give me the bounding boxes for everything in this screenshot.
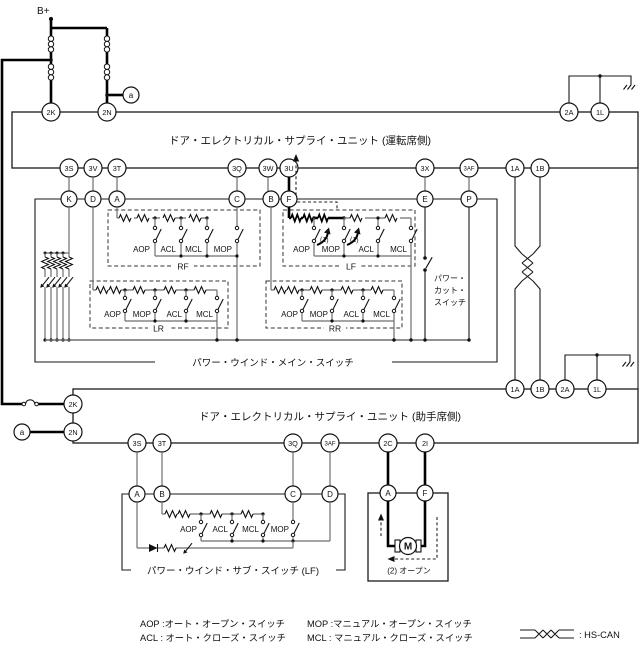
ground-icon — [624, 85, 636, 90]
legend-acl: ACL : オート・クローズ・スイッチ — [140, 632, 286, 643]
resistor-icon — [96, 287, 108, 294]
fusible-link-icon — [48, 64, 53, 80]
svg-text:MOP: MOP — [310, 310, 328, 319]
connector-1a-unit2: 1A — [506, 380, 524, 398]
connector-3af-unit2: 3AF — [321, 434, 339, 452]
connector-1b-unit1: 1B — [531, 159, 549, 177]
resistor-icon — [371, 287, 383, 294]
svg-text:AOP: AOP — [281, 310, 298, 319]
connector-3q-unit2: 3Q — [284, 434, 302, 452]
switch-icon-mop — [330, 296, 338, 312]
svg-text:2A: 2A — [565, 108, 574, 117]
pin-a: A — [109, 191, 125, 207]
connector-3s-unit2: 3S — [128, 434, 146, 452]
wiring-diagram: B+ a ドア・エレクトリカル・サプライ・ユニット (運転席側) 2K 2N 2… — [0, 0, 643, 649]
svg-text:AOP: AOP — [180, 525, 197, 534]
connector-2k-unit1: 2K — [42, 103, 60, 121]
pin-b: B — [263, 191, 279, 207]
svg-text:F: F — [287, 195, 292, 204]
svg-text:3T: 3T — [113, 164, 122, 173]
svg-text:MOP: MOP — [214, 245, 232, 254]
legend: AOP :オート・オープン・スイッチ ACL : オート・クローズ・スイッチ M… — [140, 619, 620, 643]
pin-f: F — [281, 191, 297, 207]
resistor-icon — [350, 215, 362, 222]
sub-switch-stubs — [137, 452, 330, 486]
unit1-ground-wires — [569, 76, 631, 103]
connector-2k-unit2: 2K — [64, 395, 82, 413]
svg-text:1L: 1L — [596, 108, 604, 117]
window-motor-assembly: A F M (2) オープン — [368, 452, 448, 581]
resistor-icon — [137, 215, 149, 222]
switch-box-lf: (1) (1) AOP MOP ACL MCL LF — [283, 207, 417, 340]
switch-icon-mcl — [409, 226, 417, 242]
connector-3t-unit2: 3T — [153, 434, 171, 452]
resistor-icon — [318, 215, 328, 222]
connector-2i-unit2: 2I — [416, 434, 434, 452]
connector-2c-unit2: 2C — [379, 434, 397, 452]
illumination-bank — [40, 207, 73, 342]
connector-2a-unit1: 2A — [560, 103, 578, 121]
legend-aop: AOP :オート・オープン・スイッチ — [140, 619, 285, 629]
svg-text:2K: 2K — [69, 400, 78, 409]
switch-box-rr: AOP MOP ACL MCL RR — [266, 207, 402, 340]
svg-text:B: B — [268, 195, 273, 204]
svg-text:2C: 2C — [383, 439, 392, 448]
svg-text:2K: 2K — [47, 108, 56, 117]
pin-c: C — [229, 191, 245, 207]
svg-text:C: C — [234, 195, 240, 204]
switch-icon-mcl — [261, 520, 269, 536]
connector-1l-unit1: 1L — [591, 103, 609, 121]
svg-text:2N: 2N — [68, 428, 77, 437]
svg-text:3V: 3V — [89, 164, 98, 173]
connector-3t-unit1: 3T — [108, 159, 126, 177]
switch-icon-aop — [123, 296, 131, 312]
switch-icon-aop — [199, 520, 207, 536]
svg-text:D: D — [90, 195, 96, 204]
svg-text:C: C — [290, 490, 296, 499]
connector-a2: a — [14, 424, 30, 440]
resistor-icon — [287, 287, 299, 294]
svg-text:a: a — [20, 428, 25, 437]
resistor-icon — [164, 545, 176, 552]
svg-text:3U: 3U — [284, 164, 293, 173]
switch-icon-acl — [179, 226, 187, 242]
switch-icon-mop — [291, 520, 299, 536]
resistor-icon — [241, 511, 253, 518]
hs-can-twisted-pair — [515, 177, 540, 380]
unit1-switch-stubs — [69, 177, 469, 191]
svg-text:カット・: カット・ — [434, 286, 466, 295]
connector-3af-unit1: 3AF — [460, 159, 478, 177]
switch-box-rf: AOP ACL MCL MOP RF — [108, 207, 260, 340]
resistor-icon — [165, 511, 177, 518]
fuse-icon — [22, 400, 38, 406]
connector-1b-unit2: 1B — [531, 380, 549, 398]
pin-sub-c: C — [285, 486, 301, 502]
pin-d: D — [85, 191, 101, 207]
svg-text:ACL: ACL — [166, 310, 182, 319]
svg-text:1L: 1L — [593, 385, 601, 394]
resistor-icon — [164, 287, 176, 294]
svg-text:AOP: AOP — [293, 245, 310, 254]
connector-3x-unit1: 3X — [416, 159, 434, 177]
pin-motor-a: A — [380, 485, 396, 501]
resistor-icon — [341, 287, 353, 294]
svg-text:MOP: MOP — [271, 525, 289, 534]
svg-text:1B: 1B — [536, 385, 545, 394]
pin-sub-a: A — [129, 486, 145, 502]
battery-wire — [51, 19, 107, 103]
motor-open-note: (2) オープン — [387, 567, 431, 576]
connector-3v-unit1: 3V — [84, 159, 102, 177]
pin-sub-d: D — [322, 486, 338, 502]
resistor-icon — [291, 215, 301, 222]
switch-icon-acl — [184, 296, 192, 312]
switch-icon-acl — [376, 226, 384, 242]
switch-icon-mop — [235, 226, 243, 242]
svg-text:MCL: MCL — [196, 310, 213, 319]
step1-note: (1) — [320, 237, 329, 244]
resistor-icon — [303, 215, 313, 222]
connector-1l-unit2: 1L — [588, 380, 606, 398]
resistor-icon — [189, 215, 201, 222]
svg-text:a: a — [129, 91, 134, 100]
svg-text:1A: 1A — [511, 164, 520, 173]
switch-icon-aop — [300, 296, 308, 312]
fusible-link-icon — [48, 36, 53, 52]
svg-text:AOP: AOP — [104, 310, 121, 319]
svg-text:K: K — [66, 195, 72, 204]
svg-text:E: E — [422, 195, 427, 204]
svg-text:MCL: MCL — [373, 310, 390, 319]
svg-text:ACL: ACL — [358, 245, 374, 254]
connector-a1: a — [123, 87, 139, 103]
resistor-icon — [119, 215, 131, 222]
unit1-title: ドア・エレクトリカル・サプライ・ユニット (運転席側) — [169, 134, 431, 147]
ground-icon — [623, 362, 635, 367]
connector-2n-unit1: 2N — [98, 103, 116, 121]
battery-label: B+ — [37, 6, 50, 17]
svg-text:3W: 3W — [263, 164, 274, 173]
power-window-main-switch: パワー・ウインド・メイン・スイッチ K D A C B F E P — [35, 191, 497, 369]
legend-mop: MOP :マニュアル・オープン・スイッチ — [307, 619, 472, 629]
resistor-icon — [194, 287, 206, 294]
connector-1a-unit1: 1A — [506, 159, 524, 177]
switch-icon-mop — [153, 296, 161, 312]
illumination-branches — [40, 253, 73, 340]
svg-text:F: F — [423, 489, 428, 498]
fusible-link-icon — [104, 36, 109, 52]
svg-text:MOP: MOP — [133, 310, 151, 319]
switch-icon-mop — [342, 226, 350, 242]
svg-text:P: P — [466, 195, 471, 204]
pin-p: P — [461, 191, 477, 207]
pin-sub-b: B — [154, 486, 170, 502]
pin-e: E — [417, 191, 433, 207]
switch-icon-aop — [312, 226, 320, 242]
svg-text:3AF: 3AF — [324, 442, 335, 448]
svg-text:1B: 1B — [536, 164, 545, 173]
svg-text:A: A — [114, 195, 120, 204]
resistor-icon — [178, 511, 190, 518]
svg-text:3AF: 3AF — [463, 167, 474, 173]
resistor-icon — [109, 287, 121, 294]
lf-box-label: LF — [346, 262, 356, 272]
svg-text:ACL: ACL — [212, 525, 228, 534]
step1-note: (1) — [350, 237, 359, 244]
hs-can-symbol-icon — [520, 630, 574, 638]
connector-2a-unit2: 2A — [556, 380, 574, 398]
switch-blade-icon — [426, 257, 432, 268]
svg-text:B: B — [159, 490, 164, 499]
pin-motor-f: F — [417, 485, 433, 501]
svg-text:パワー・: パワー・ — [434, 274, 466, 283]
motor-m-label: M — [404, 542, 412, 553]
svg-text:1A: 1A — [511, 385, 520, 394]
power-window-sub-switch: パワー・ウインド・サブ・スイッチ (LF) A B C D AOP ACL MC… — [122, 452, 345, 577]
lr-box-label: LR — [153, 324, 164, 334]
resistor-icon — [274, 287, 286, 294]
svg-text:3Q: 3Q — [288, 439, 298, 448]
rr-box-label: RR — [329, 324, 341, 334]
svg-text:A: A — [385, 489, 391, 498]
connector-3q-unit1: 3Q — [228, 159, 246, 177]
svg-text:3T: 3T — [158, 439, 167, 448]
svg-text:3X: 3X — [421, 164, 430, 173]
resistor-icon — [163, 215, 175, 222]
switch-icon-acl — [361, 296, 369, 312]
svg-text:3Q: 3Q — [232, 164, 242, 173]
svg-text:A: A — [134, 490, 140, 499]
svg-text:3S: 3S — [133, 439, 142, 448]
fusible-link-icon — [104, 64, 109, 80]
connector-2n-unit2: 2N — [64, 423, 82, 441]
svg-text:MCL: MCL — [390, 245, 407, 254]
unit2-title: ドア・エレクトリカル・サプライ・ユニット (助手席側) — [199, 410, 461, 423]
resistor-icon — [210, 511, 222, 518]
motor-feed-wires — [388, 452, 425, 486]
svg-text:3S: 3S — [65, 164, 74, 173]
svg-text:ACL: ACL — [160, 245, 176, 254]
svg-text:2I: 2I — [422, 439, 428, 448]
switch-icon-mcl — [205, 226, 213, 242]
svg-text:2N: 2N — [102, 108, 111, 117]
connector-3s-unit1: 3S — [60, 159, 78, 177]
svg-text:MCL: MCL — [185, 245, 202, 254]
main-switch-label: パワー・ウインド・メイン・スイッチ — [192, 358, 354, 369]
svg-text:MCL: MCL — [242, 525, 259, 534]
svg-text:MOP: MOP — [322, 245, 340, 254]
resistor-icon — [133, 287, 145, 294]
wiring-diagram-page: B+ a ドア・エレクトリカル・サプライ・ユニット (運転席側) 2K 2N 2… — [0, 0, 643, 649]
resistor-icon — [310, 287, 322, 294]
svg-text:スイッチ: スイッチ — [434, 298, 466, 307]
svg-text:D: D — [327, 490, 333, 499]
switch-icon-mcl — [215, 296, 223, 312]
rf-box-label: RF — [177, 262, 188, 272]
pin-k: K — [61, 191, 77, 207]
switch-icon-acl — [230, 520, 238, 536]
svg-text:2A: 2A — [561, 385, 570, 394]
connector-3u-unit1: 3U — [280, 159, 298, 177]
legend-mcl: MCL : マニュアル・クローズ・スイッチ — [307, 632, 473, 643]
svg-text:ACL: ACL — [343, 310, 359, 319]
power-cut-switch: パワー・ カット・ スイッチ — [423, 207, 466, 340]
legend-hscan: : HS-CAN — [579, 630, 620, 640]
diode-icon — [149, 544, 158, 552]
sub-switch-label: パワー・ウインド・サブ・スイッチ (LF) — [147, 565, 319, 577]
svg-text:AOP: AOP — [133, 245, 150, 254]
resistor-icon — [385, 215, 397, 222]
unit2-ground-wires — [565, 355, 630, 381]
switch-icon-aop — [153, 226, 161, 242]
connector-3w-unit1: 3W — [259, 159, 277, 177]
switch-icon-mcl — [392, 296, 400, 312]
